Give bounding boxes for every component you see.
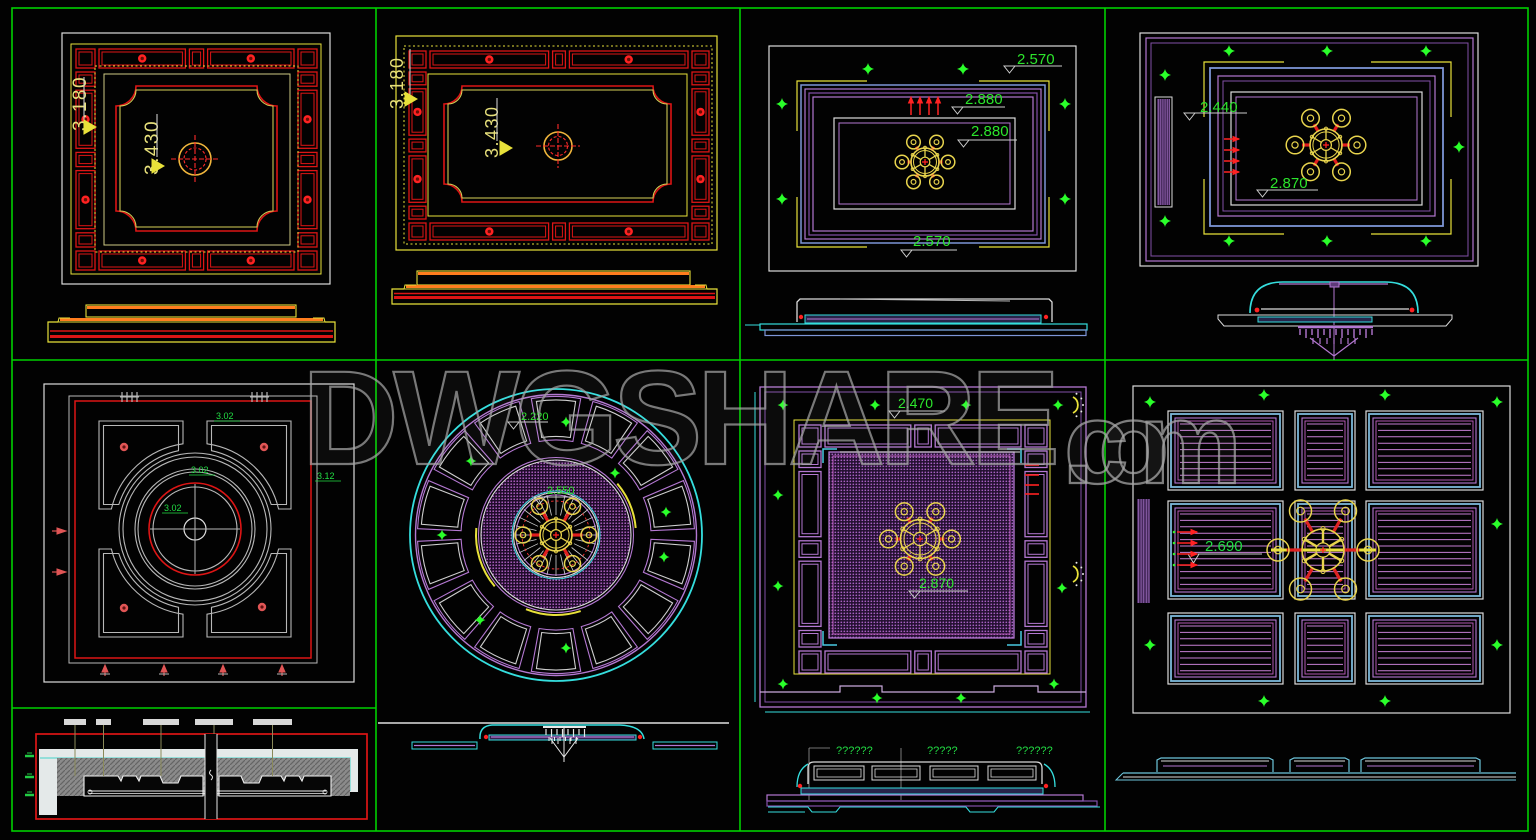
- svg-text:3.02: 3.02: [191, 465, 209, 475]
- svg-text:3.02: 3.02: [164, 503, 182, 513]
- svg-text:2.570: 2.570: [1017, 51, 1055, 68]
- svg-text:2.870: 2.870: [1270, 175, 1308, 192]
- svg-text:2.880: 2.880: [965, 91, 1003, 108]
- svg-text:3.430: 3.430: [482, 105, 502, 158]
- svg-text:2.880: 2.880: [971, 123, 1009, 140]
- svg-text:?????: ?????: [927, 745, 958, 757]
- svg-text:2.570: 2.570: [913, 233, 951, 250]
- svg-text:.com: .com: [1062, 378, 1242, 508]
- svg-text:??????: ??????: [836, 745, 873, 757]
- svg-text:2.870: 2.870: [919, 575, 954, 591]
- svg-text:3.180: 3.180: [387, 56, 407, 109]
- svg-text:3.02: 3.02: [216, 411, 234, 421]
- svg-text:??????: ??????: [1016, 745, 1053, 757]
- svg-text:2.690: 2.690: [1205, 538, 1243, 555]
- svg-text:DWGSHARE: DWGSHARE: [302, 344, 1060, 493]
